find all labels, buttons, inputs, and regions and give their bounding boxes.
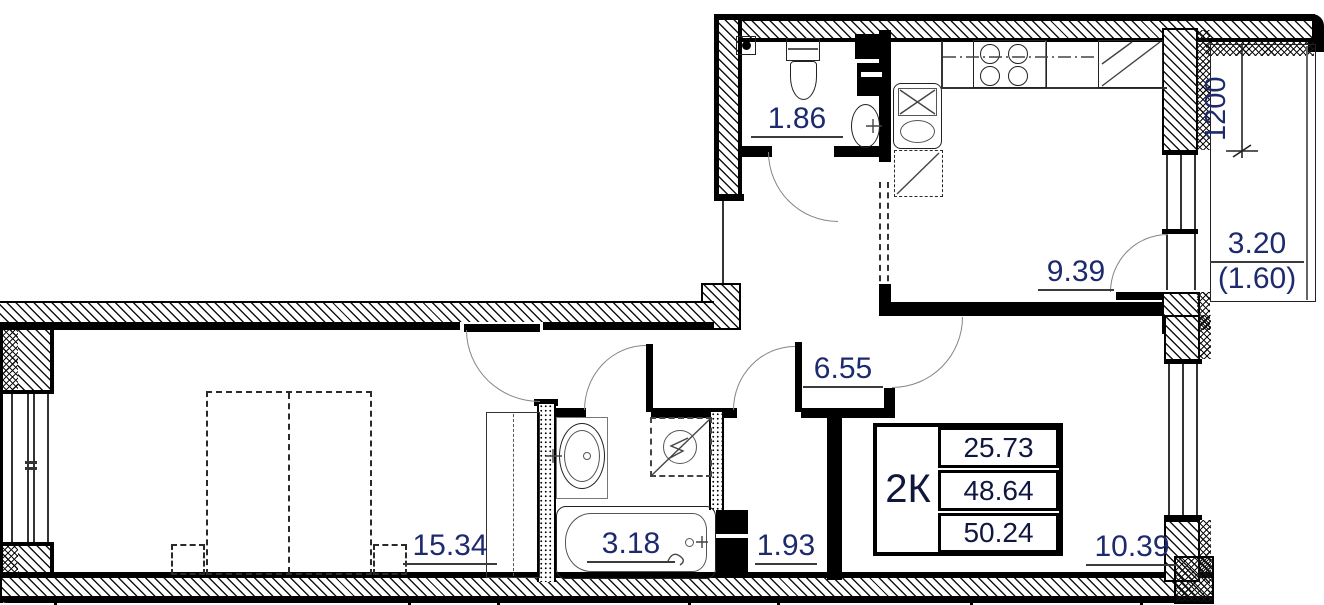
total-area-cell: 50.24 (938, 513, 1059, 553)
bedroom-area-label: 15.34 (403, 530, 497, 565)
living-area-total-cell: 25.73 (938, 427, 1059, 468)
fridge-diagonal-1 (1102, 42, 1160, 86)
corridor-area-label: 6.55 (803, 353, 883, 388)
wc-area-label: 1.86 (751, 103, 843, 138)
dishwasher-diagonal (897, 153, 939, 194)
balcony-width-dimension: 1200 (1200, 56, 1238, 162)
kitchen-sink-x (900, 90, 935, 114)
balcony-reduced-area-label: (1.60) (1204, 263, 1310, 296)
bathtub-tap-cross (696, 536, 708, 548)
living-area-label: 10.39 (1086, 531, 1178, 566)
bath-sink-tap (546, 449, 562, 463)
washer-diagonal (652, 419, 710, 475)
fridge-diagonal-2 (1102, 42, 1132, 64)
apartment-area-cell: 48.64 (938, 470, 1059, 511)
storage-area-label: 1.93 (755, 530, 817, 565)
apartment-type-cell: 2К (879, 429, 937, 550)
kitchen-area-label: 9.39 (1038, 256, 1114, 291)
balcony-area-label: 3.20 (1210, 228, 1304, 263)
bathroom-area-label: 3.18 (587, 528, 675, 563)
floor-plan: 1.86 9.39 3.20 (1.60) 6.55 15.34 3.18 1.… (0, 0, 1324, 605)
wc-sink-tap (866, 119, 882, 133)
detail-overlay (0, 0, 1324, 605)
